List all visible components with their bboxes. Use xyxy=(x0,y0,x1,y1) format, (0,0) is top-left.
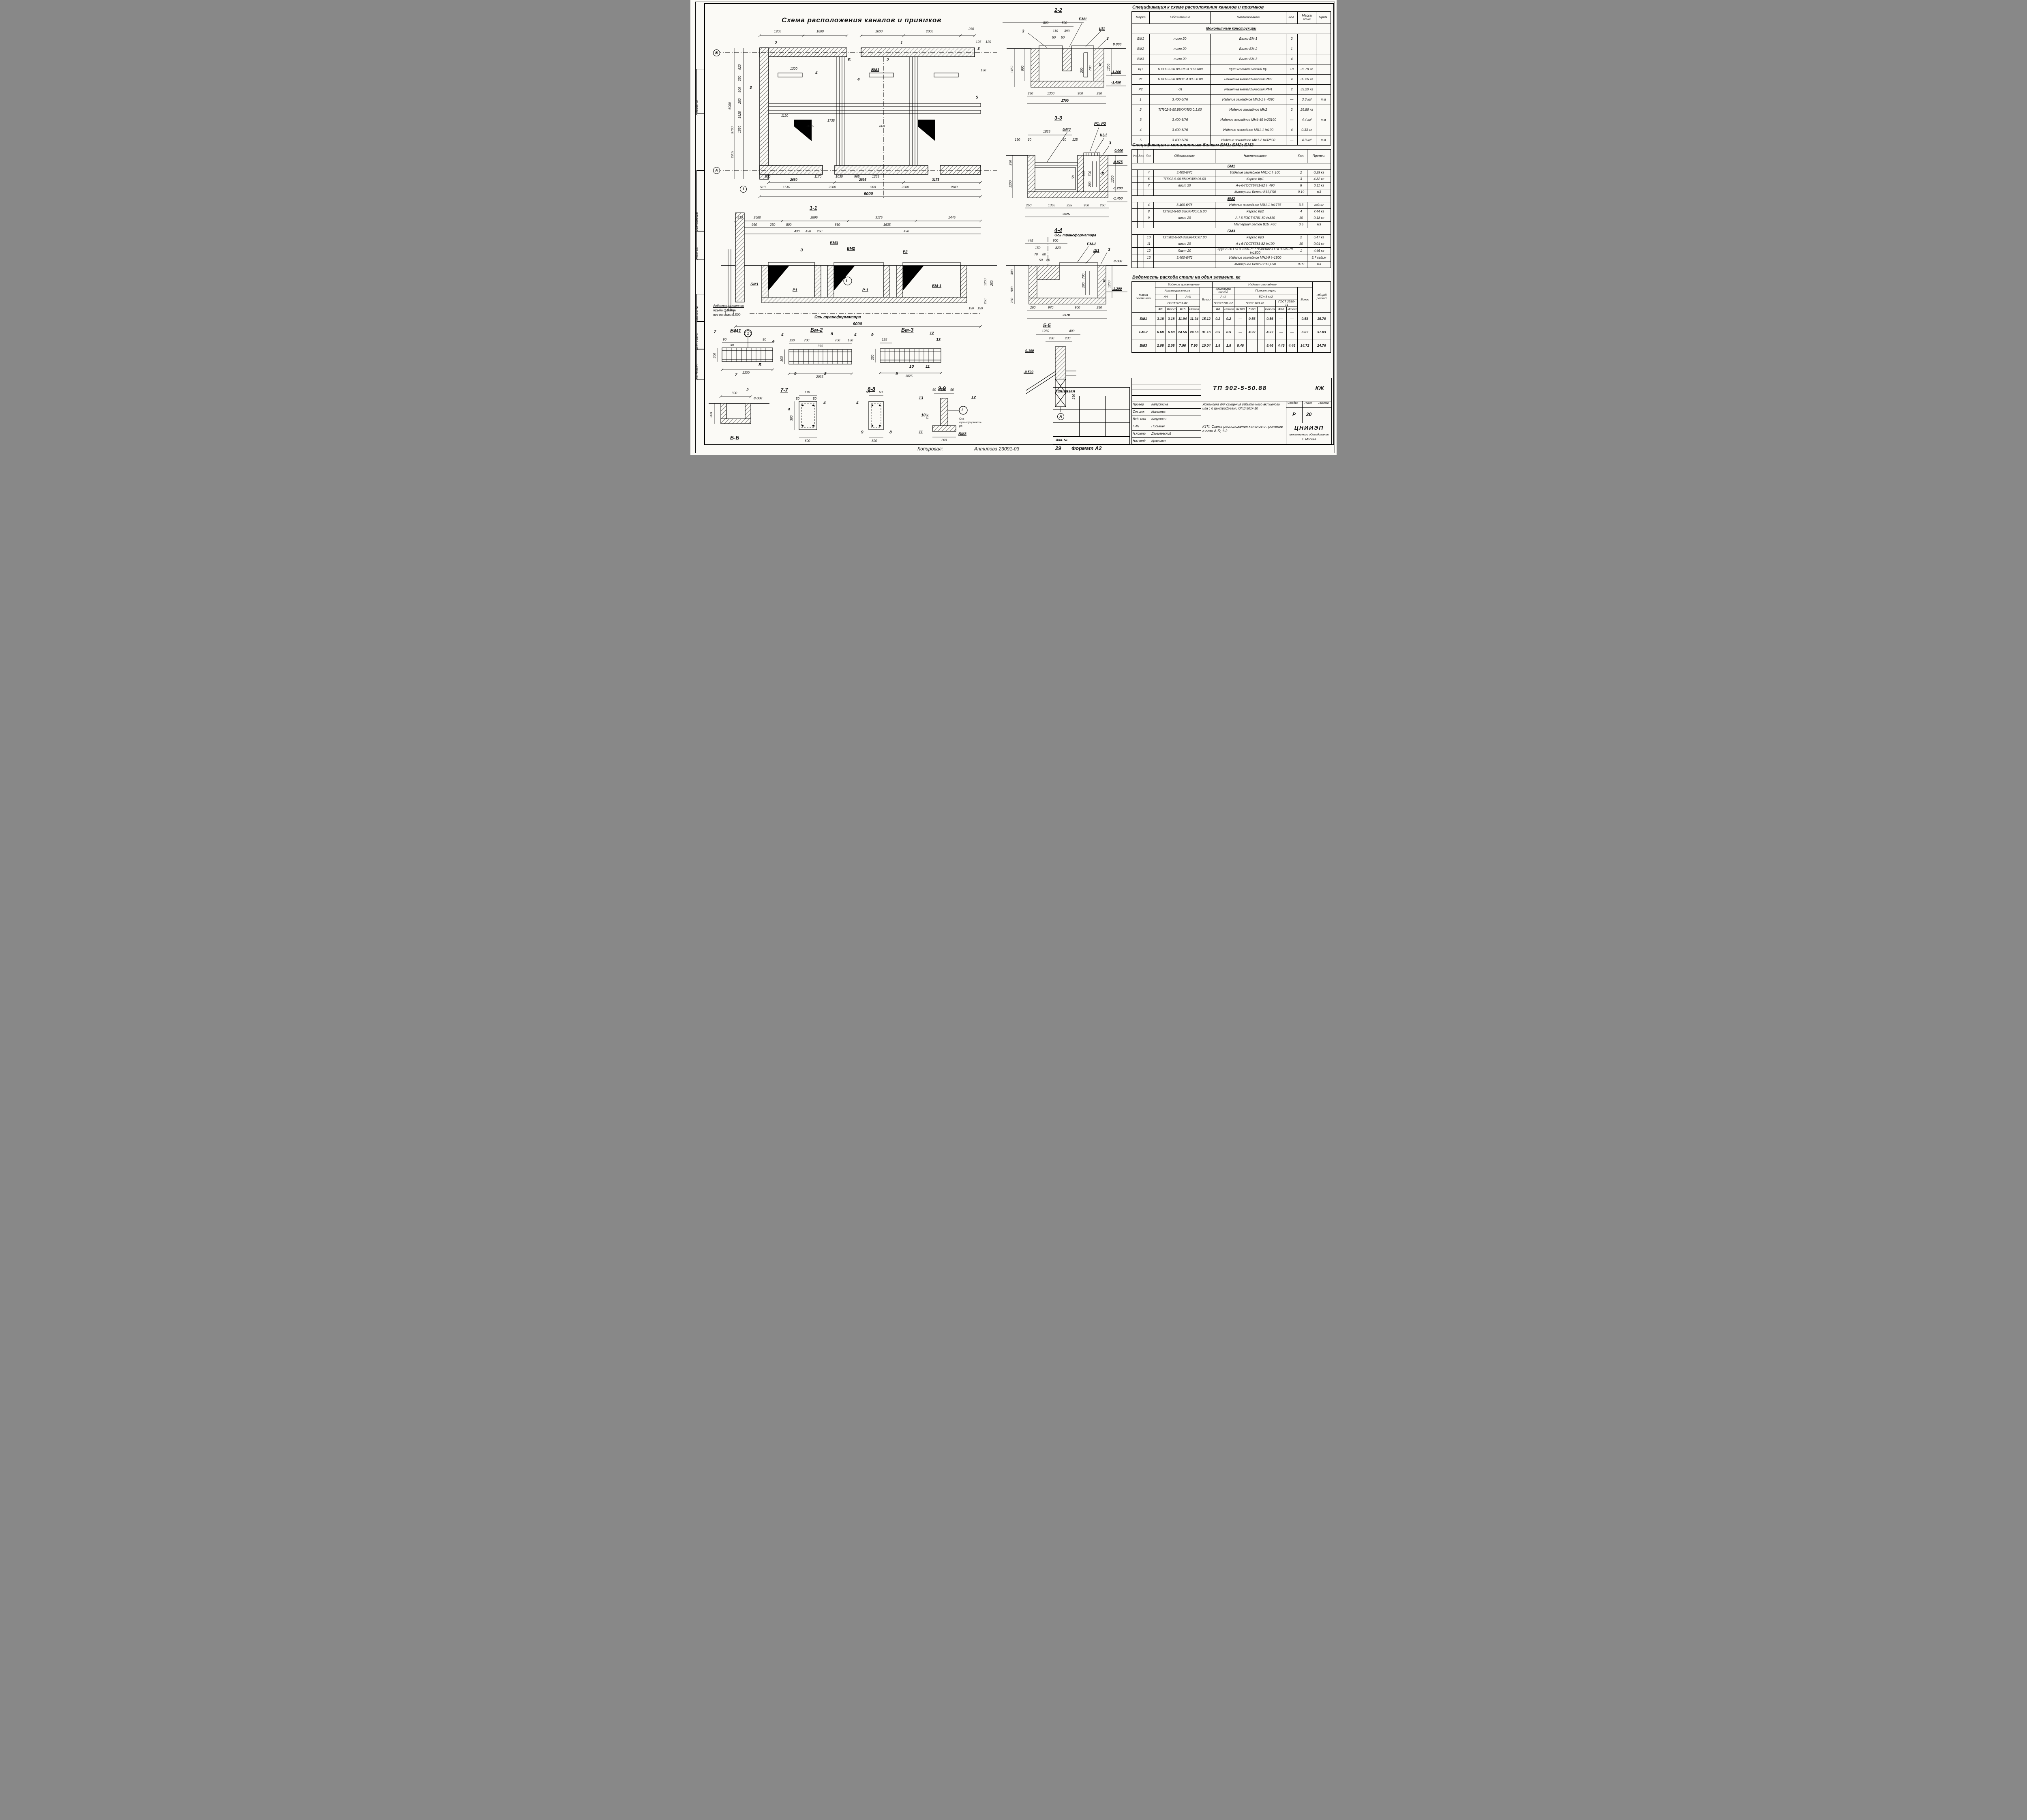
section-2-2: 2-2 800 500 110 390 50 50 1450 900 200 7… xyxy=(1003,6,1130,111)
table-cell: 4 xyxy=(1144,170,1154,176)
sig-role: Н.контр. xyxy=(1133,432,1146,436)
callout: 1 xyxy=(900,41,903,45)
steel-h: ГОСТ 103-76 xyxy=(1234,300,1276,307)
axis-marker-a: А xyxy=(713,167,720,174)
section-4-4-title: 4-4 xyxy=(1054,227,1062,233)
dim: 60 xyxy=(1046,259,1050,262)
table-cell: Р1 xyxy=(1132,75,1150,85)
dim: 700 xyxy=(835,339,840,342)
table-cell: 3 xyxy=(1132,115,1150,125)
callout: I xyxy=(962,408,963,412)
callout: 4 xyxy=(788,408,790,412)
dim: 125 xyxy=(1072,138,1078,141)
sidebar-album-cell: Альбом III xyxy=(696,69,704,114)
table-cell: — xyxy=(1276,326,1287,339)
dim: 1510 xyxy=(783,186,790,189)
callout: 11 xyxy=(919,431,923,435)
table-cell: 3.400-6/76 xyxy=(1154,170,1215,176)
project-description: Установка для сгущения избыточного актив… xyxy=(1202,403,1283,410)
steel-h: А-III xyxy=(1213,294,1234,300)
table-cell: Материал Бетон В15,F50 xyxy=(1215,262,1295,268)
table-cell: п.м xyxy=(1316,95,1331,105)
table-cell: 3.400-6/76 xyxy=(1150,125,1211,135)
dim: 900 xyxy=(738,87,741,92)
dim: 130 xyxy=(848,339,853,342)
callout: 5 xyxy=(1103,279,1106,283)
steel-h xyxy=(1258,307,1264,312)
table-cell: 1 xyxy=(1295,248,1307,255)
table-cell: 11.94 xyxy=(1188,312,1200,326)
table-cell: 6.87 xyxy=(1297,326,1312,339)
dim: 3175 xyxy=(932,178,939,182)
callout: Р-1 xyxy=(862,288,868,292)
spec2-h: Обозначение xyxy=(1154,150,1215,163)
sig-role: Вед. инж xyxy=(1133,417,1146,421)
dim: 3780 xyxy=(731,126,734,134)
sidebar-inv-cell: Инв. № подл. xyxy=(696,349,704,379)
table-cell: БМ3 xyxy=(1132,339,1155,352)
callout: 2 xyxy=(887,58,889,62)
callout: Р2 xyxy=(903,250,908,254)
dim: 820 xyxy=(738,64,741,70)
table-cell: 11 xyxy=(1144,241,1154,248)
table-cell xyxy=(1316,64,1331,75)
callout: БМ3 xyxy=(830,241,838,245)
table-cell xyxy=(1258,326,1264,339)
spec2-title: Спецификация к монолитным балкам БМ1; БМ… xyxy=(1132,143,1253,148)
sig-name: Красовин xyxy=(1151,439,1166,443)
dim: 300 xyxy=(732,392,737,395)
dim: 150 xyxy=(1035,247,1040,250)
callout: Р1 xyxy=(793,288,797,292)
table-cell: 0.11 кг xyxy=(1307,183,1331,189)
sidebar-podp-cell: Подп. и дата xyxy=(696,322,704,349)
callout: 2 xyxy=(746,388,749,392)
table-cell xyxy=(1132,176,1138,183)
table-cell: 10 xyxy=(1144,235,1154,241)
dim: 700 xyxy=(1088,171,1092,176)
dim: 50 xyxy=(932,388,936,392)
table-cell xyxy=(1132,189,1138,196)
table-cell: м3 xyxy=(1307,222,1331,228)
table-cell: 3.18 xyxy=(1155,312,1166,326)
sidebar-album-label: Альбом III xyxy=(695,100,699,115)
table-cell: 29.86 кг xyxy=(1297,105,1316,115)
table-cell: Каркас Кр1 xyxy=(1215,176,1295,183)
table-cell: 1 xyxy=(1132,95,1150,105)
table-cell: ТП902-5-50.88КЖ.И.00.5.0.00 xyxy=(1150,75,1211,85)
section-1-1: 1-1 510 2680 2895 3175 1445 950 250 800 … xyxy=(713,205,1001,339)
table-cell: 4 xyxy=(1132,125,1150,135)
dim: 225 xyxy=(1067,204,1072,207)
axis-marker: 1 xyxy=(745,330,751,337)
dim: 800 xyxy=(786,223,791,227)
table-cell: 6 xyxy=(1144,176,1154,183)
dim: 190 xyxy=(1015,138,1020,141)
dim: 250 xyxy=(1100,204,1105,207)
table-cell: 0.18 кг xyxy=(1307,215,1331,222)
steel-h: ГОСТ 5781-82 xyxy=(1155,300,1200,307)
table-cell: 0.58 xyxy=(1297,312,1312,326)
beam-bm3: Бм-3 125 250 1825 9 9 12 13 10 11 xyxy=(868,324,951,383)
dim: 860 xyxy=(879,125,885,128)
steel-h: 5х60 xyxy=(1247,307,1258,312)
dim: 250 xyxy=(871,355,874,360)
table-cell xyxy=(1295,255,1307,262)
axis-note: ра xyxy=(959,425,962,429)
dim: 1300 xyxy=(742,371,750,375)
table-cell: — xyxy=(1276,312,1287,326)
table-cell xyxy=(1138,262,1144,268)
sidebar-agreed-cell: Согласовано xyxy=(696,170,704,231)
table-cell: 7 xyxy=(1144,183,1154,189)
section-bb: Б-Б 300 200 0.000 2 xyxy=(707,385,771,444)
dim: 1600 xyxy=(816,30,824,33)
callout: 4 xyxy=(854,333,857,337)
callout: 13 xyxy=(919,397,923,401)
dim: 30 xyxy=(730,344,734,347)
table-cell: 15.70 xyxy=(1312,312,1331,326)
dim: 150 xyxy=(981,69,986,72)
table-cell: 2 xyxy=(1132,105,1150,115)
table-cell: ТП902-5-50.88.КЖ.И.00.6.000 xyxy=(1150,64,1211,75)
section-88: 8-8 50 60 820 4 9 8 xyxy=(851,385,903,444)
table-cell xyxy=(1144,189,1154,196)
callout: 10 xyxy=(909,365,914,369)
dim: 60 xyxy=(1063,138,1066,141)
elevation: -1.450 xyxy=(1113,197,1123,200)
dim: 500 xyxy=(1062,21,1067,25)
dim: 1200 xyxy=(1111,176,1114,183)
table-cell: 31.16 xyxy=(1200,326,1213,339)
table-cell: 24.56 xyxy=(1188,326,1200,339)
steel-h: Прокат марки xyxy=(1234,287,1297,294)
spec1-h: Кол. xyxy=(1286,12,1297,24)
dim: 1940 xyxy=(950,186,958,189)
table-cell: Лист 20 xyxy=(1154,248,1215,255)
table-cell: А-I-6-ГОСТ 5781-82 ℓ=810 xyxy=(1215,215,1295,222)
sidebar-dept-cell: Отдел з.д. xyxy=(696,231,704,259)
table-cell: 1 xyxy=(1286,44,1297,54)
steel-h: А-III xyxy=(1176,294,1200,300)
table-cell: 0.29 кг xyxy=(1307,170,1331,176)
elevation: -1.200 xyxy=(1111,70,1121,74)
dim: 430 xyxy=(806,230,811,233)
callout: 5 xyxy=(976,96,978,100)
table-cell: 1.8 xyxy=(1223,339,1234,352)
dim: 50 xyxy=(813,397,816,401)
table-cell: 4 xyxy=(1295,209,1307,215)
dim: 250 xyxy=(926,414,929,419)
table-cell: 2 xyxy=(1286,105,1297,115)
dim: 390 xyxy=(1064,30,1069,33)
dim: 250 xyxy=(770,223,775,227)
dim: 445 xyxy=(1028,239,1033,242)
org-line2: инженерного оборудования xyxy=(1286,433,1332,436)
drawing-sheet: Альбом III Согласовано Отдел з.д. Взам. … xyxy=(690,0,1337,455)
callout: 2 xyxy=(775,41,777,45)
dim: 1445 xyxy=(948,216,956,219)
dim: 600 xyxy=(805,439,810,443)
table-cell xyxy=(1138,202,1144,209)
dim: 2035 xyxy=(806,125,814,128)
table-cell xyxy=(1316,85,1331,95)
table-cell: 8.46 xyxy=(1234,339,1247,352)
table-cell: 3 xyxy=(1295,176,1307,183)
dim: 2370 xyxy=(1063,314,1070,317)
table-cell: 6.60 xyxy=(1155,326,1166,339)
table-group-row: БМ3 xyxy=(1132,228,1331,235)
dim: 510 xyxy=(737,216,743,219)
table-cell: 13 xyxy=(1144,255,1154,262)
callout: 4 xyxy=(815,71,818,75)
table-cell: 4.46 xyxy=(1276,339,1287,352)
table-cell xyxy=(1316,44,1331,54)
dim: 110 xyxy=(805,391,810,394)
spec1-h: Наименование xyxy=(1211,12,1286,24)
dim: 1825 xyxy=(1043,130,1050,133)
dim: 2680 xyxy=(754,216,761,219)
callout: БМ1 xyxy=(871,68,879,72)
dim: 230 xyxy=(1065,337,1070,340)
spec2-h: Наименование xyxy=(1215,150,1295,163)
dim: 1350 xyxy=(1048,204,1055,207)
table-cell: 18 xyxy=(1286,64,1297,75)
table-cell: 8 xyxy=(1144,209,1154,215)
steel-h: 6х100 xyxy=(1234,307,1247,312)
dim: 150 xyxy=(969,307,974,310)
table-cell xyxy=(1316,34,1331,44)
sig-role: Нач отд xyxy=(1133,439,1146,443)
table-cell: Щит металлический Щ1 xyxy=(1211,64,1286,75)
dim: 1825 xyxy=(738,111,741,118)
steel-h: А-I xyxy=(1155,294,1176,300)
table-cell: 3.3 xyxy=(1295,202,1307,209)
table-cell: Материал Бетон В15,F50 xyxy=(1215,189,1295,196)
dim: 2000 xyxy=(926,30,933,33)
dim: 1120 xyxy=(781,114,788,118)
dim: 1550 xyxy=(738,126,741,133)
dim: 250 xyxy=(1011,298,1014,303)
sig-role: Ст.инж xyxy=(1133,410,1144,414)
dim: 860 xyxy=(835,223,840,227)
table-cell: 5.7 кг/п.м xyxy=(1307,255,1331,262)
table-cell: 8.46 xyxy=(1264,339,1276,352)
callout: Щ1 xyxy=(1093,249,1099,253)
table-cell: 8 xyxy=(1295,183,1307,189)
steel-h: Арматура класса xyxy=(1155,287,1200,294)
dim: 1235 xyxy=(872,175,879,178)
table-cell xyxy=(1316,75,1331,85)
pipe-note: труба ф100мм xyxy=(713,309,736,313)
table-cell xyxy=(1316,105,1331,115)
dim: 250 xyxy=(969,28,974,31)
callout: 3 xyxy=(1109,141,1111,146)
steel-h: Изделия закладные xyxy=(1213,282,1312,287)
dim: 90 xyxy=(763,338,766,341)
table-cell: Каркас Кр2 xyxy=(1215,209,1295,215)
org-city: г. Москва xyxy=(1286,437,1332,441)
steel-h: Всего xyxy=(1297,287,1312,313)
table-cell: Изделие закладное МН1-1 ℓ=4390 xyxy=(1211,95,1286,105)
dim: 2895 xyxy=(859,178,866,182)
steel-h: Итого xyxy=(1223,307,1234,312)
dim: 500 xyxy=(765,175,770,178)
table-cell xyxy=(1138,241,1144,248)
dim: 200 xyxy=(1082,283,1085,288)
elevation: -1.200 xyxy=(1113,187,1123,190)
spec2-h: Поз. xyxy=(1144,150,1154,163)
table-cell xyxy=(1316,125,1331,135)
table-cell xyxy=(1132,255,1138,262)
dim: 1200 xyxy=(984,279,987,286)
table-cell: 12 xyxy=(1144,248,1154,255)
callout: 12 xyxy=(930,332,934,336)
section-4-4-linework xyxy=(1003,227,1130,325)
table-cell: — xyxy=(1287,312,1298,326)
section-bb-title: Б-Б xyxy=(730,435,739,441)
sidebar-dept-label: Отдел з.д. xyxy=(696,247,699,260)
table-cell: БМ-2 xyxy=(1132,326,1155,339)
table-cell xyxy=(1154,189,1215,196)
table-group-row: БМ1 xyxy=(1132,163,1331,170)
callout: БМ1 xyxy=(750,283,759,287)
dim: 250 xyxy=(738,76,741,81)
table-cell: 4.4 кг/ xyxy=(1297,115,1316,125)
callout: БМ-2 xyxy=(1087,242,1096,247)
table-cell: Изделие закладное МИ1-1 ℓ=1775 xyxy=(1215,202,1295,209)
table-cell: Балки БМ-2 xyxy=(1211,44,1286,54)
dim: 80 xyxy=(1042,253,1046,256)
sig-role: ГИП xyxy=(1133,424,1139,429)
table-cell: 4.97 xyxy=(1247,326,1258,339)
table-cell: 2 xyxy=(1286,85,1297,95)
table-cell: 10 xyxy=(1295,215,1307,222)
table-cell xyxy=(1132,170,1138,176)
axis-marker-1: 1 xyxy=(740,186,747,193)
table-cell: 3.3 кг/ xyxy=(1297,95,1316,105)
table-cell: 7.96 xyxy=(1188,339,1200,352)
table-cell: п.м xyxy=(1316,115,1331,125)
stage-header: Стадия xyxy=(1288,402,1298,405)
table-cell: Изделие закладное МИ1-1 ℓ=100 xyxy=(1211,125,1286,135)
table-cell: Круг 8-20 ГОСТ2590-71 / ВСт3кп2-I ГОСТ53… xyxy=(1215,248,1295,255)
table-cell: 0.56 xyxy=(1247,312,1258,326)
table-cell: БМ1 xyxy=(1132,312,1155,326)
table-cell: 0.2 xyxy=(1223,312,1234,326)
doc-number: ТП 902-5-50.88 xyxy=(1213,385,1267,392)
copied-label: Копировал: xyxy=(917,446,943,452)
table-cell: 0.9 xyxy=(1213,326,1223,339)
spec1-table: Марка Обозначение Наименование Кол. Масс… xyxy=(1131,11,1331,146)
table-cell xyxy=(1144,222,1154,228)
dim: 1200 xyxy=(1009,180,1012,188)
table-cell: Материал Бетон В15, F50 xyxy=(1215,222,1295,228)
dim: 50 xyxy=(950,388,954,392)
beam-bm1: БМ1 90 30 90 300 1300 7 7 4 Б 1 xyxy=(711,324,780,383)
dim: 950 xyxy=(752,223,757,227)
beam-bm2-linework xyxy=(779,324,862,383)
callout: 3 xyxy=(750,86,752,90)
table-cell xyxy=(1138,248,1144,255)
callout: 13 xyxy=(936,338,941,342)
dim: 430 xyxy=(794,230,799,233)
table-cell xyxy=(1297,54,1316,64)
dim: 200 xyxy=(1080,68,1084,73)
table-cell: — xyxy=(1286,95,1297,105)
table-cell xyxy=(1144,262,1154,268)
table-cell: 4.46 xyxy=(1287,339,1298,352)
table-cell: 4.46 кг xyxy=(1307,248,1331,255)
callout: I xyxy=(846,279,847,283)
table-cell xyxy=(1132,241,1138,248)
sig-name: Данилевский xyxy=(1151,432,1171,436)
sig-name: Письман xyxy=(1151,424,1165,429)
elevation: -1.200 xyxy=(1112,287,1122,291)
table-cell: 11.94 xyxy=(1176,312,1188,326)
table-cell xyxy=(1297,34,1316,44)
table-cell xyxy=(1138,255,1144,262)
dim: 70 xyxy=(1034,253,1038,256)
copied-by: Антипова 23091-03 xyxy=(974,446,1019,452)
table-cell: 0.09 xyxy=(1295,262,1307,268)
table-cell: 14.72 xyxy=(1297,339,1312,352)
dim: 1300 xyxy=(790,67,797,71)
pipe-note: Асбестоцементная xyxy=(713,304,744,308)
table-cell: 15.12 xyxy=(1200,312,1213,326)
callout: 4 xyxy=(823,401,826,405)
spec2-table: Форм. Зона Поз. Обозначение Наименование… xyxy=(1131,149,1331,268)
callout: 3 xyxy=(977,47,980,51)
steel-h: ГОСТ 2590-71 xyxy=(1276,300,1297,307)
steel-h: Общий расход xyxy=(1312,282,1331,313)
dim: 2700 xyxy=(1061,99,1069,103)
sig-name: Капустина xyxy=(1151,403,1168,407)
cut-mark: 9 xyxy=(896,372,898,376)
dim: 200 xyxy=(1088,182,1092,187)
table-cell: — xyxy=(1287,326,1298,339)
sheets-header: Листов xyxy=(1318,402,1329,405)
steel-h: Арматура класса xyxy=(1213,287,1234,294)
sidebar-agreed-label: Согласовано xyxy=(695,212,699,232)
table-cell: А-I-6-ГОСТ5781-82 ℓ=190 xyxy=(1215,241,1295,248)
elevation: 0.000 xyxy=(1114,149,1123,152)
dim: 300 xyxy=(780,356,784,362)
table-cell: 0.33 кг xyxy=(1297,125,1316,135)
steel-h: Всего xyxy=(1200,287,1213,313)
table-cell: 0.56 xyxy=(1264,312,1276,326)
section-77-title: 7-7 xyxy=(780,387,788,393)
privyazan-label: Привязан xyxy=(1056,389,1075,394)
dim: 1200 xyxy=(1108,281,1111,288)
elevation: 0.000 xyxy=(1113,43,1121,46)
table-cell: лист 20 xyxy=(1150,34,1211,44)
table-cell: 6.47 кг xyxy=(1307,235,1331,241)
callout: 4 xyxy=(857,78,860,82)
callout: БМ-1 xyxy=(932,284,941,288)
callout: 3 xyxy=(1022,30,1024,34)
table-cell: ТП902-5-50.88КЖИ00.0.1.00 xyxy=(1150,105,1211,115)
inv-no-label: Инв. № xyxy=(1056,438,1067,442)
table-cell: БМ3 xyxy=(1132,54,1150,64)
dim: 125 xyxy=(1082,171,1085,176)
beam-bm1-title: БМ1 xyxy=(730,328,741,334)
table-cell xyxy=(1138,176,1144,183)
callout: Щ1 xyxy=(1099,27,1105,31)
table-cell: 33.20 кг xyxy=(1297,85,1316,95)
dim: 110 xyxy=(1053,30,1058,33)
callout: БМ2 xyxy=(847,247,855,251)
